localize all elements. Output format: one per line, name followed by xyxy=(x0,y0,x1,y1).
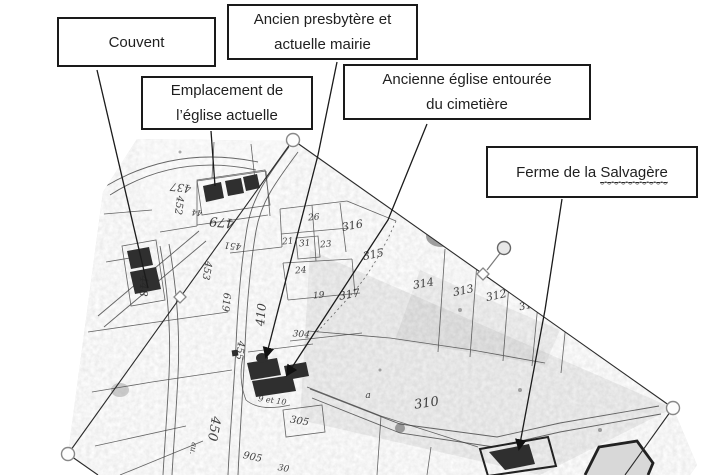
svg-text:619: 619 xyxy=(219,292,232,313)
callout-couvent[interactable]: Couvent xyxy=(57,17,216,67)
svg-text:479: 479 xyxy=(209,213,236,230)
svg-text:24: 24 xyxy=(294,266,308,277)
svg-text:23: 23 xyxy=(319,240,333,251)
svg-text:451: 451 xyxy=(224,239,243,251)
svg-text:304: 304 xyxy=(292,329,310,340)
svg-text:31: 31 xyxy=(299,239,311,250)
svg-text:437: 437 xyxy=(169,180,192,196)
callout-presbytere[interactable]: Ancien presbytère et actuelle mairie xyxy=(227,4,418,60)
callout-ancienne-line2: du cimetière xyxy=(426,92,508,117)
callout-ferme-prefix: Ferme de la xyxy=(516,164,600,181)
annotated-map-figure: 4374524447945141045344861945526213123241… xyxy=(0,0,711,475)
selection-handle-corner-left[interactable] xyxy=(62,448,75,461)
svg-text:19: 19 xyxy=(313,291,326,302)
callout-presbytere-line2: actuelle mairie xyxy=(274,32,371,57)
svg-text:30: 30 xyxy=(277,463,290,475)
svg-text:21: 21 xyxy=(281,237,294,248)
svg-text:26: 26 xyxy=(307,213,321,224)
callout-ancienne-eglise[interactable]: Ancienne église entourée du cimetière xyxy=(343,64,591,120)
selection-handle-corner-right[interactable] xyxy=(667,402,680,415)
selection-handle-corner-top[interactable] xyxy=(287,134,300,147)
rotation-handle-stick xyxy=(487,252,501,270)
callout-emplacement-line2: l’église actuelle xyxy=(176,103,278,128)
callout-ferme[interactable]: Ferme de la Salvagère xyxy=(486,146,698,198)
rotation-handle[interactable] xyxy=(498,242,511,255)
svg-text:448: 448 xyxy=(137,274,151,296)
callout-couvent-label: Couvent xyxy=(109,30,165,55)
svg-text:a: a xyxy=(365,391,370,401)
svg-text:410: 410 xyxy=(253,302,269,327)
callout-ferme-underlined: Salvagère xyxy=(600,164,668,183)
callout-presbytere-line1: Ancien presbytère et xyxy=(254,7,392,32)
callout-ferme-label: Ferme de la Salvagère xyxy=(516,160,668,185)
callout-ancienne-line1: Ancienne église entourée xyxy=(382,67,551,92)
svg-text:44: 44 xyxy=(191,208,203,218)
callout-emplacement[interactable]: Emplacement de l’église actuelle xyxy=(141,76,313,130)
callout-emplacement-line1: Emplacement de xyxy=(171,78,284,103)
